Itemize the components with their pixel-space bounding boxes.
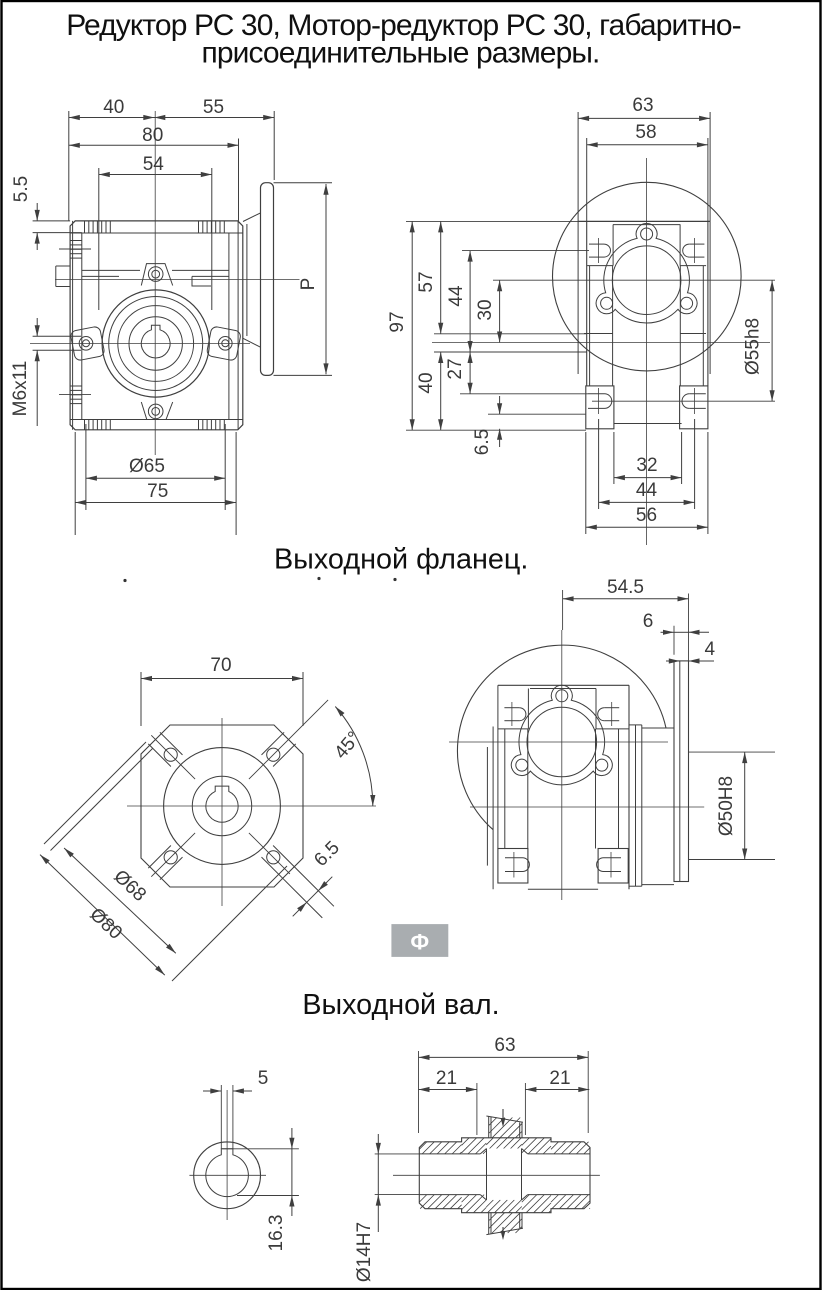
svg-text:44: 44 [446,285,467,307]
svg-text:56: 56 [636,505,657,526]
svg-text:4: 4 [705,639,716,660]
svg-text:63: 63 [632,95,653,116]
svg-text:40: 40 [416,372,437,393]
svg-text:63: 63 [494,1035,515,1056]
svg-text:6: 6 [643,611,654,632]
svg-text:5.5: 5.5 [11,176,32,202]
svg-text:Ø65: Ø65 [129,456,165,477]
svg-text:присоединительные размеры.: присоединительные размеры. [202,37,600,70]
svg-text:6.5: 6.5 [472,429,493,455]
svg-text:30: 30 [475,299,496,320]
svg-text:44: 44 [636,480,658,501]
svg-text:21: 21 [436,1068,457,1089]
svg-text:57: 57 [416,271,437,292]
svg-text:97: 97 [387,311,408,332]
svg-text:Ф: Ф [410,930,429,955]
svg-text:M6x11: M6x11 [10,361,31,417]
svg-text:Выходной фланец.: Выходной фланец. [274,544,528,576]
svg-text:40: 40 [103,97,124,118]
svg-text:54: 54 [143,154,165,175]
svg-text:Ø55h8: Ø55h8 [743,318,764,375]
svg-text:55: 55 [203,97,224,118]
svg-text:58: 58 [635,122,656,143]
svg-text:Выходной вал.: Выходной вал. [302,989,499,1021]
svg-text:27: 27 [445,358,466,379]
svg-text:Ø14H7: Ø14H7 [354,1222,375,1282]
svg-text:80: 80 [142,125,163,146]
svg-text:54.5: 54.5 [607,577,644,598]
svg-text:P: P [298,278,319,291]
svg-text:70: 70 [210,655,231,676]
svg-text:16.3: 16.3 [266,1215,287,1252]
svg-text:21: 21 [549,1068,570,1089]
svg-text:75: 75 [147,481,168,502]
svg-text:32: 32 [636,455,657,476]
svg-text:5: 5 [258,1068,269,1089]
svg-text:Ø50H8: Ø50H8 [716,776,737,836]
